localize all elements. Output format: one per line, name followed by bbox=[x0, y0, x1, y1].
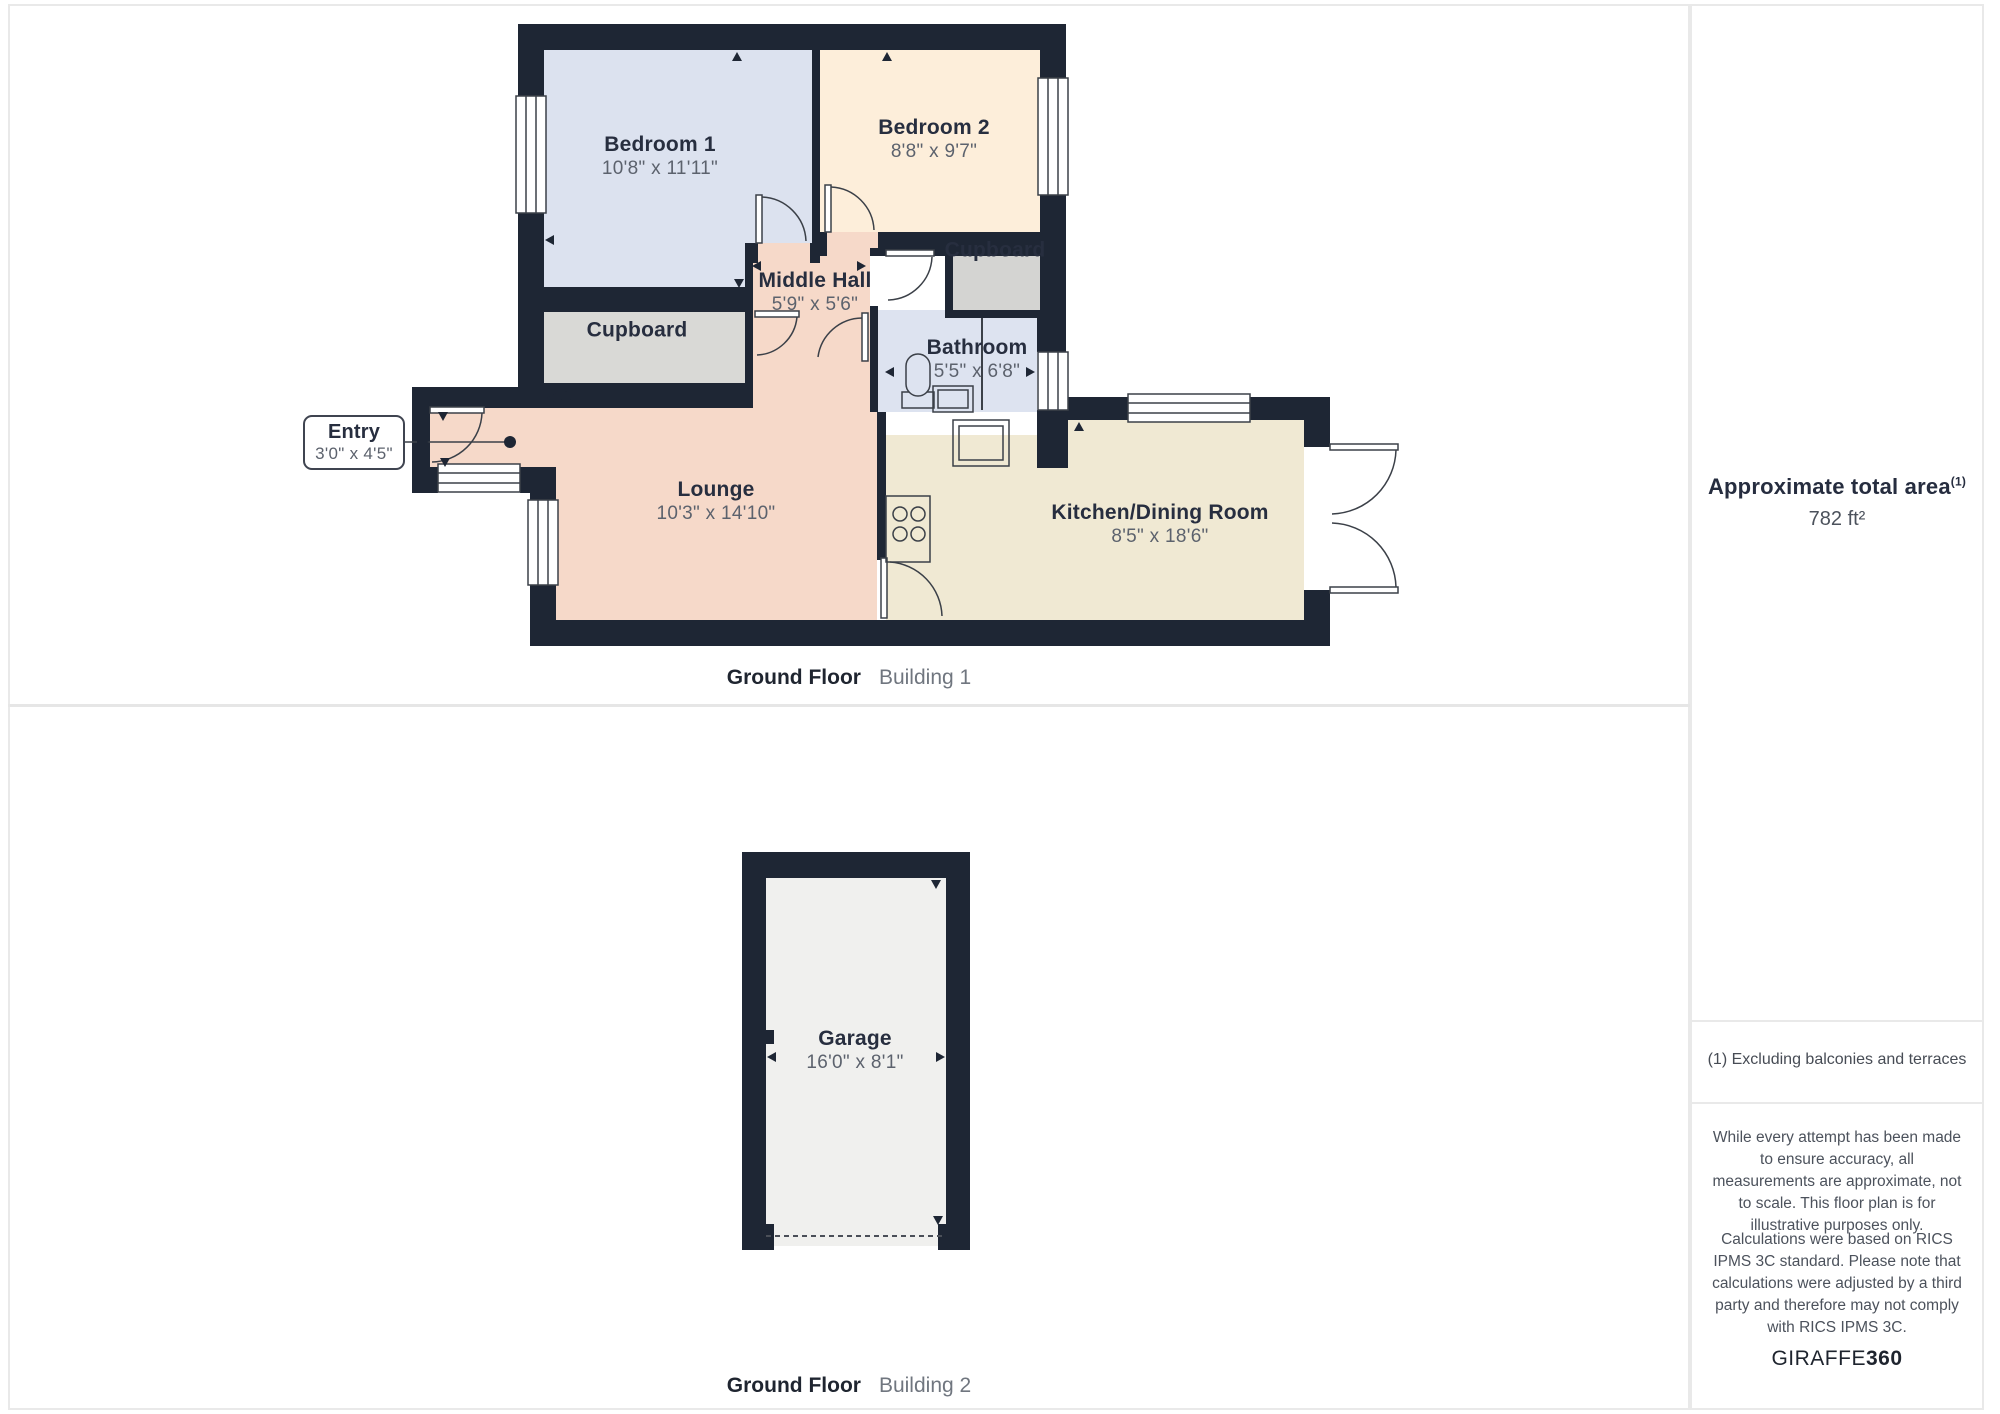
room-label-middle-hall: Middle Hall 5'9" x 5'6" bbox=[758, 268, 871, 316]
room-label-bedroom-2: Bedroom 2 8'8" x 9'7" bbox=[878, 115, 990, 163]
room-dims: 10'8" x 11'11" bbox=[602, 157, 718, 180]
room-label-cupboard-left: Cupboard bbox=[587, 318, 688, 343]
window-bedroom1-left bbox=[516, 96, 546, 213]
room-dims: 10'3" x 14'10" bbox=[657, 502, 776, 525]
room-dims: 8'8" x 9'7" bbox=[878, 140, 990, 163]
entry-callout: Entry 3'0" x 4'5" bbox=[303, 415, 405, 470]
room-name: Garage bbox=[806, 1026, 903, 1051]
room-label-bathroom: Bathroom 5'5" x 6'8" bbox=[927, 335, 1028, 383]
room-name: Bedroom 1 bbox=[602, 132, 718, 157]
caption-building: Building 2 bbox=[879, 1374, 971, 1397]
caption-building-2: Ground FloorBuilding 2 bbox=[8, 1374, 1690, 1398]
brand-regular: GIRAFFE bbox=[1771, 1347, 1866, 1370]
total-area-superscript: (1) bbox=[1951, 475, 1966, 489]
floor-plan-drawing bbox=[0, 0, 2000, 1414]
total-area-value: 782 ft² bbox=[1700, 508, 1974, 531]
room-label-kitchen-dining: Kitchen/Dining Room 8'5" x 18'6" bbox=[1051, 500, 1268, 548]
room-name: Cupboard bbox=[945, 238, 1046, 263]
caption-floor: Ground Floor bbox=[727, 666, 861, 689]
caption-building-1: Ground FloorBuilding 1 bbox=[8, 666, 1690, 690]
room-label-garage: Garage 16'0" x 8'1" bbox=[806, 1026, 903, 1074]
room-name: Kitchen/Dining Room bbox=[1051, 500, 1268, 525]
room-label-lounge: Lounge 10'3" x 14'10" bbox=[657, 477, 776, 525]
french-doors-kitchen bbox=[1330, 444, 1398, 593]
window-lounge-left bbox=[528, 500, 558, 585]
disclaimer-accuracy: While every attempt has been made to ens… bbox=[1712, 1127, 1962, 1237]
room-name: Cupboard bbox=[587, 318, 688, 343]
window-kitchen-top bbox=[1128, 394, 1250, 422]
brand-bold: 360 bbox=[1866, 1347, 1903, 1370]
window-bathroom-right bbox=[1038, 352, 1068, 410]
total-area-title: Approximate total area(1) bbox=[1700, 474, 1974, 500]
room-name: Bathroom bbox=[927, 335, 1028, 360]
room-name: Lounge bbox=[657, 477, 776, 502]
caption-floor: Ground Floor bbox=[727, 1374, 861, 1397]
room-name: Entry bbox=[328, 421, 380, 444]
total-area-title-text: Approximate total area bbox=[1708, 474, 1951, 499]
room-dims: 8'5" x 18'6" bbox=[1051, 525, 1268, 548]
room-dims: 16'0" x 8'1" bbox=[806, 1051, 903, 1074]
room-name: Middle Hall bbox=[758, 268, 871, 293]
giraffe360-logo: GIRAFFE360 bbox=[1700, 1347, 1974, 1371]
caption-building: Building 1 bbox=[879, 666, 971, 689]
disclaimer-rics: Calculations were based on RICS IPMS 3C … bbox=[1712, 1229, 1962, 1339]
floorplan-page: Bedroom 1 10'8" x 11'11" Bedroom 2 8'8" … bbox=[0, 0, 2000, 1414]
room-name: Bedroom 2 bbox=[878, 115, 990, 140]
area-footnote: (1) Excluding balconies and terraces bbox=[1700, 1051, 1974, 1069]
room-dims: 5'5" x 6'8" bbox=[927, 360, 1028, 383]
room-label-cupboard-top-right: Cupboard bbox=[945, 238, 1046, 263]
room-dims: 5'9" x 5'6" bbox=[758, 293, 871, 316]
window-bedroom2-right bbox=[1038, 78, 1068, 195]
window-entry-bottom bbox=[438, 464, 520, 492]
room-label-bedroom-1: Bedroom 1 10'8" x 11'11" bbox=[602, 132, 718, 180]
room-dims: 3'0" x 4'5" bbox=[315, 444, 393, 464]
